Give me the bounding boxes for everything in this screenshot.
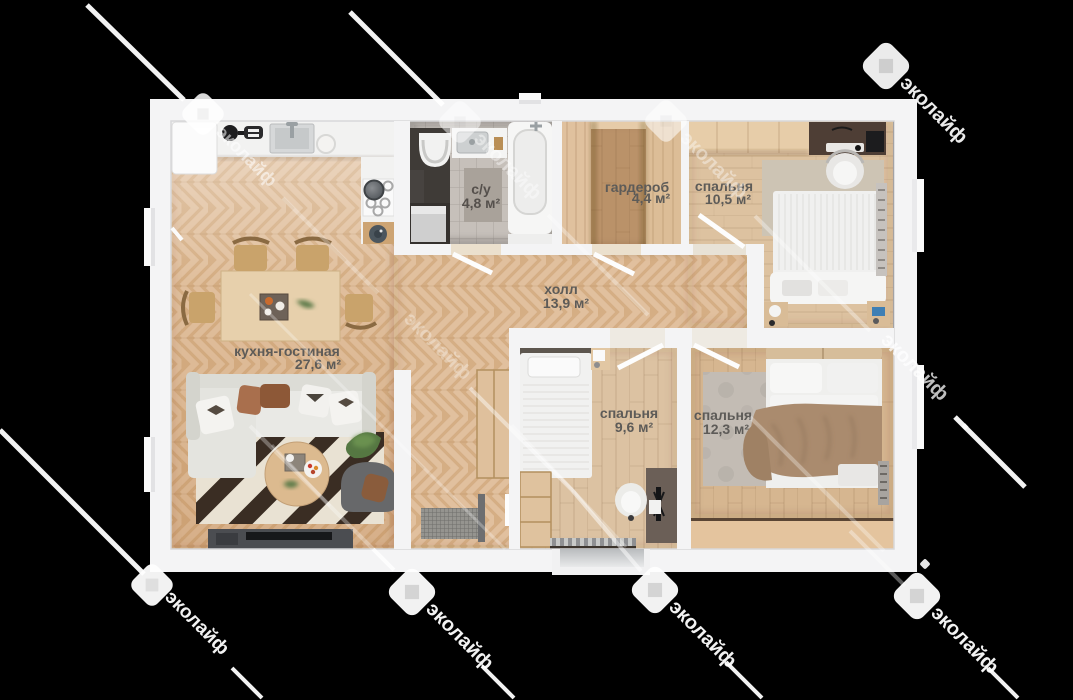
svg-text:4,4 м²: 4,4 м² bbox=[632, 190, 671, 206]
svg-text:12,3 м²: 12,3 м² bbox=[703, 421, 749, 437]
svg-text:13,9 м²: 13,9 м² bbox=[543, 295, 589, 311]
svg-text:9,6 м²: 9,6 м² bbox=[615, 419, 654, 435]
svg-text:4,8 м²: 4,8 м² bbox=[462, 195, 501, 211]
